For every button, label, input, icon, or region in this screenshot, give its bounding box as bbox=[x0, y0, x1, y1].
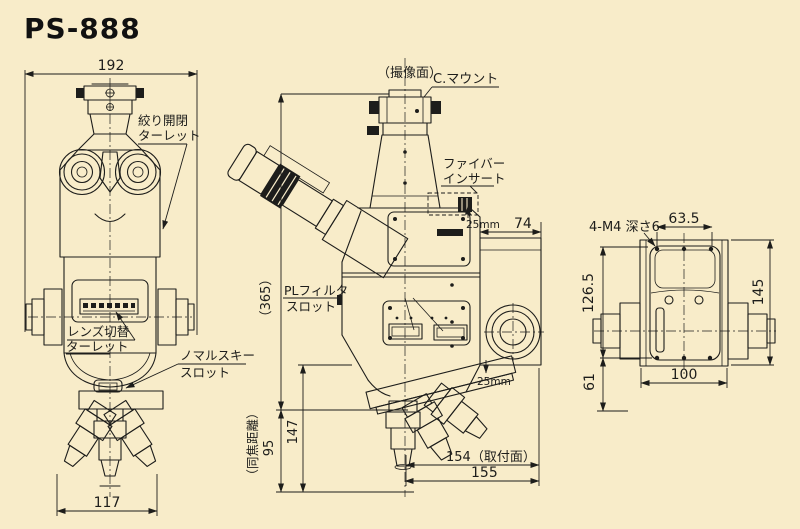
side-objective-right2 bbox=[422, 381, 493, 447]
label-lens-turret: レンズ切替 ターレット bbox=[66, 312, 135, 354]
front-objective-right bbox=[101, 399, 164, 473]
dim-95-text: 95 bbox=[262, 440, 277, 457]
fiber-insert-label: ファイバー インサート bbox=[441, 156, 506, 193]
dim-155-text: 155 bbox=[471, 465, 498, 481]
dim-126-5-text: 126.5 bbox=[581, 273, 597, 313]
side-upper-panel bbox=[388, 212, 470, 266]
dim-192-text: 192 bbox=[98, 58, 125, 74]
dim-154-text: 154（取付面） bbox=[446, 450, 536, 465]
label-aperture-turret: 絞り開閉 ターレット bbox=[138, 113, 201, 229]
dim-25mm-bottom-text: 25mm bbox=[477, 376, 511, 388]
nomarski-line2: スロット bbox=[180, 365, 230, 380]
dim-63-5-text: 63.5 bbox=[668, 211, 699, 227]
dim-155: 155 bbox=[405, 465, 539, 481]
dim-74-text: 74 bbox=[514, 216, 532, 232]
microscope-drawing: 192 117 絞り開閉 ターレット レンズ切替 ターレット bbox=[0, 0, 800, 529]
pl-filter-label: PLフィルタ スロット bbox=[283, 283, 348, 314]
dim-25mm-top-text: 25mm bbox=[466, 219, 500, 231]
fiber-line2: インサート bbox=[443, 171, 506, 186]
side-view: （撮像面） C.マウント ファイバー インサート PLフィルタ スロット bbox=[224, 58, 544, 497]
front-eyepiece-left bbox=[60, 150, 105, 195]
side-rear-block bbox=[480, 238, 544, 365]
dim-147-text: 147 bbox=[286, 420, 301, 445]
dim-61-text: 61 bbox=[582, 373, 598, 391]
pl-filter-line2: スロット bbox=[286, 299, 336, 314]
lens-turret-line2: ターレット bbox=[66, 339, 129, 354]
dim-147: 147 bbox=[286, 365, 352, 492]
dim-365-text: （365） bbox=[259, 273, 274, 324]
parfocal-label-text: （同焦距離） bbox=[245, 406, 260, 481]
dim-117-text: 117 bbox=[94, 495, 121, 511]
front-view: 192 117 絞り開閉 ターレット レンズ切替 ターレット bbox=[25, 58, 255, 516]
label-nomarski-slot: ノマルスキー スロット bbox=[126, 348, 255, 388]
rear-plate bbox=[594, 233, 776, 376]
side-body bbox=[342, 208, 480, 396]
dim-126-5: 126.5 bbox=[581, 247, 652, 358]
side-lower-panel bbox=[383, 298, 470, 345]
dim-63-5: 63.5 bbox=[657, 211, 712, 246]
fiber-line1: ファイバー bbox=[443, 156, 505, 171]
front-objective-left bbox=[55, 399, 118, 473]
dim-61: 61 bbox=[582, 358, 628, 411]
lens-turret-window bbox=[80, 299, 138, 314]
aperture-turret-line1: 絞り開閉 bbox=[138, 113, 188, 128]
dim-100-text: 100 bbox=[671, 367, 698, 383]
dim-100: 100 bbox=[641, 367, 727, 388]
mount-holes-text: 4-M4 深さ6 bbox=[589, 220, 660, 235]
dim-365: （365） bbox=[259, 94, 389, 410]
side-objective-center bbox=[386, 401, 420, 470]
label-mount-holes: 4-M4 深さ6 bbox=[589, 220, 660, 246]
nomarski-line1: ノマルスキー bbox=[180, 348, 255, 363]
c-mount-label: C.マウント bbox=[424, 72, 499, 97]
dim-95-parfocal: （同焦距離） 95 bbox=[245, 406, 281, 492]
dim-base-width: 117 bbox=[57, 474, 157, 516]
dim-145-text: 145 bbox=[751, 279, 767, 306]
c-mount-port bbox=[367, 90, 441, 135]
aperture-turret-line2: ターレット bbox=[138, 128, 201, 143]
eyepiece-tube bbox=[224, 134, 411, 278]
rear-view: 63.5 4-M4 深さ6 100 145 bbox=[581, 211, 776, 411]
dim-25mm-bottom: 25mm bbox=[477, 360, 511, 388]
lens-turret-line1: レンズ切替 bbox=[67, 324, 130, 339]
front-eyepiece-right bbox=[116, 150, 161, 195]
technical-drawing-page: PS-888 bbox=[0, 0, 800, 529]
c-mount-text: C.マウント bbox=[433, 72, 498, 87]
front-nosepiece-ring bbox=[79, 391, 163, 409]
